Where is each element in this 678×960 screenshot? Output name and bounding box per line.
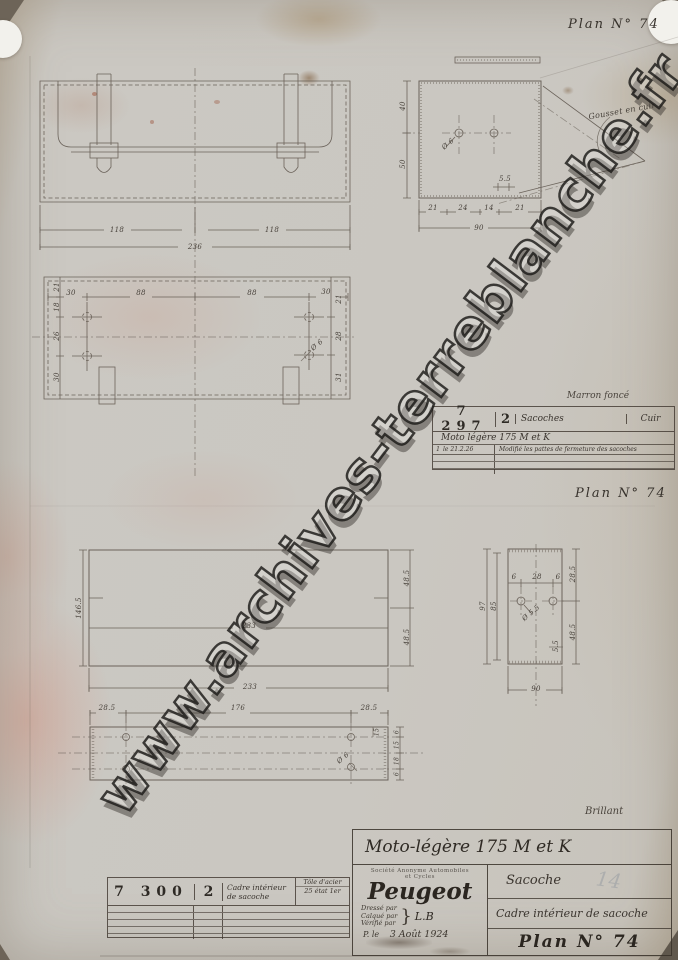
part-qty: 2 xyxy=(194,884,222,900)
dim-label: 233 xyxy=(242,622,256,630)
technical-drawing-linework xyxy=(0,0,678,960)
part-ref: 7 297 xyxy=(433,404,495,434)
plan-number-middle: Plan N° 74 xyxy=(575,486,667,501)
sacoche-parts-table: 7 297 2 Sacoches Cuir Moto légère 175 M … xyxy=(432,406,675,470)
dim-label: 18 xyxy=(53,302,61,312)
dim-label: 90 xyxy=(531,685,541,693)
dim-label: 233 xyxy=(243,683,257,691)
part-material: Tôle d'acier 25 état 1er xyxy=(295,878,349,905)
dim-label: 88 xyxy=(136,289,146,297)
dim-label: 28.5 xyxy=(99,704,116,712)
material-line2: 25 état 1er xyxy=(296,887,349,895)
strip-view xyxy=(58,710,424,785)
cadre-parts-table: 7 300 2 Cadre intérieur de sacoche Tôle … xyxy=(107,877,350,938)
dim-label: 30 xyxy=(321,288,331,296)
date: 3 Août 1924 xyxy=(390,929,449,940)
dim-label: 26 xyxy=(53,331,61,341)
model-line: Moto légère 175 M et K xyxy=(433,432,674,445)
dim-label: 28 xyxy=(335,331,343,341)
dim-label: 236 xyxy=(188,243,202,251)
dim-label: 31 xyxy=(335,372,343,382)
plan-number: Plan N° 74 xyxy=(488,929,671,955)
dim-label: 5.5 xyxy=(499,175,511,183)
dim-label: 146.5 xyxy=(75,597,83,619)
dim-label: 21 xyxy=(515,204,525,212)
part-material: Cuir xyxy=(626,414,674,424)
revision-text: Modifié les pattes de fermeture des saco… xyxy=(494,445,674,454)
dim-label: 18 xyxy=(394,757,401,765)
dim-label: 21 xyxy=(53,282,61,292)
dim-label: 88 xyxy=(247,289,257,297)
dim-label: 90 xyxy=(474,224,484,232)
part-designation: Sacoches xyxy=(515,414,626,424)
dim-label: 48.5 xyxy=(403,629,411,646)
dim-label: 15 xyxy=(374,728,381,736)
dim-label: 6 xyxy=(556,573,561,581)
part-title: Sacoche xyxy=(488,865,671,899)
front-view xyxy=(40,68,350,478)
revision-index: 1 xyxy=(433,445,443,454)
dim-label: 6 xyxy=(394,730,401,734)
dim-label: 48.5 xyxy=(569,624,577,641)
material-line1: Tôle d'acier xyxy=(296,878,349,887)
dim-label: 15 xyxy=(394,741,401,749)
dim-label: 28 xyxy=(532,573,542,581)
dim-label: 118 xyxy=(110,226,124,234)
drawing-sheet: 118 118 236 30 88 88 30 21 18 26 30 21 2… xyxy=(0,0,678,960)
dim-label: 6 xyxy=(394,772,401,776)
finish-note: Brillant xyxy=(585,806,623,817)
dim-label: 85 xyxy=(490,601,498,611)
dim-label: 28.5 xyxy=(569,566,577,583)
dim-label: 118 xyxy=(265,226,279,234)
dim-label: 28.5 xyxy=(361,704,378,712)
back-view xyxy=(32,277,354,404)
part-designation: Cadre intérieur de sacoche xyxy=(222,883,295,901)
dim-label: 24 xyxy=(458,204,468,212)
peugeot-logo: Peugeot xyxy=(353,880,487,904)
title-model-line: Moto-légère 175 M et K xyxy=(353,830,671,865)
dim-label: 21 xyxy=(335,294,343,304)
part-ref: 7 300 xyxy=(108,884,194,900)
dim-label: 14 xyxy=(484,204,494,212)
title-block: Moto-légère 175 M et K Société Anonyme A… xyxy=(352,829,672,956)
dim-label: 40 xyxy=(399,101,407,111)
revision-date: le 21.2.26 xyxy=(443,445,494,454)
initials: L.B xyxy=(415,910,434,923)
dim-label: 30 xyxy=(66,289,76,297)
dim-label: 21 xyxy=(428,204,438,212)
dim-label: 6 xyxy=(512,573,517,581)
part-subtitle: Cadre intérieur de sacoche xyxy=(488,899,671,929)
dim-label: 30 xyxy=(53,372,61,382)
dim-label: 48.5 xyxy=(403,570,411,587)
part-qty: 2 xyxy=(495,412,515,427)
dim-label: 50 xyxy=(399,159,407,169)
frame-view xyxy=(79,550,414,692)
color-note: Marron foncé xyxy=(567,391,629,401)
dim-label: 5.5 xyxy=(552,640,560,652)
brace: } xyxy=(400,906,411,927)
checked-label: Vérifié par xyxy=(361,920,397,928)
frame-side-view xyxy=(483,544,580,706)
dim-label: 97 xyxy=(479,601,487,611)
dim-label: 176 xyxy=(231,704,245,712)
plan-number-top: Plan N° 74 xyxy=(568,17,660,32)
date-prefix: P. le xyxy=(363,930,379,939)
company-cell: Société Anonyme Automobiles et Cycles Pe… xyxy=(353,865,488,955)
